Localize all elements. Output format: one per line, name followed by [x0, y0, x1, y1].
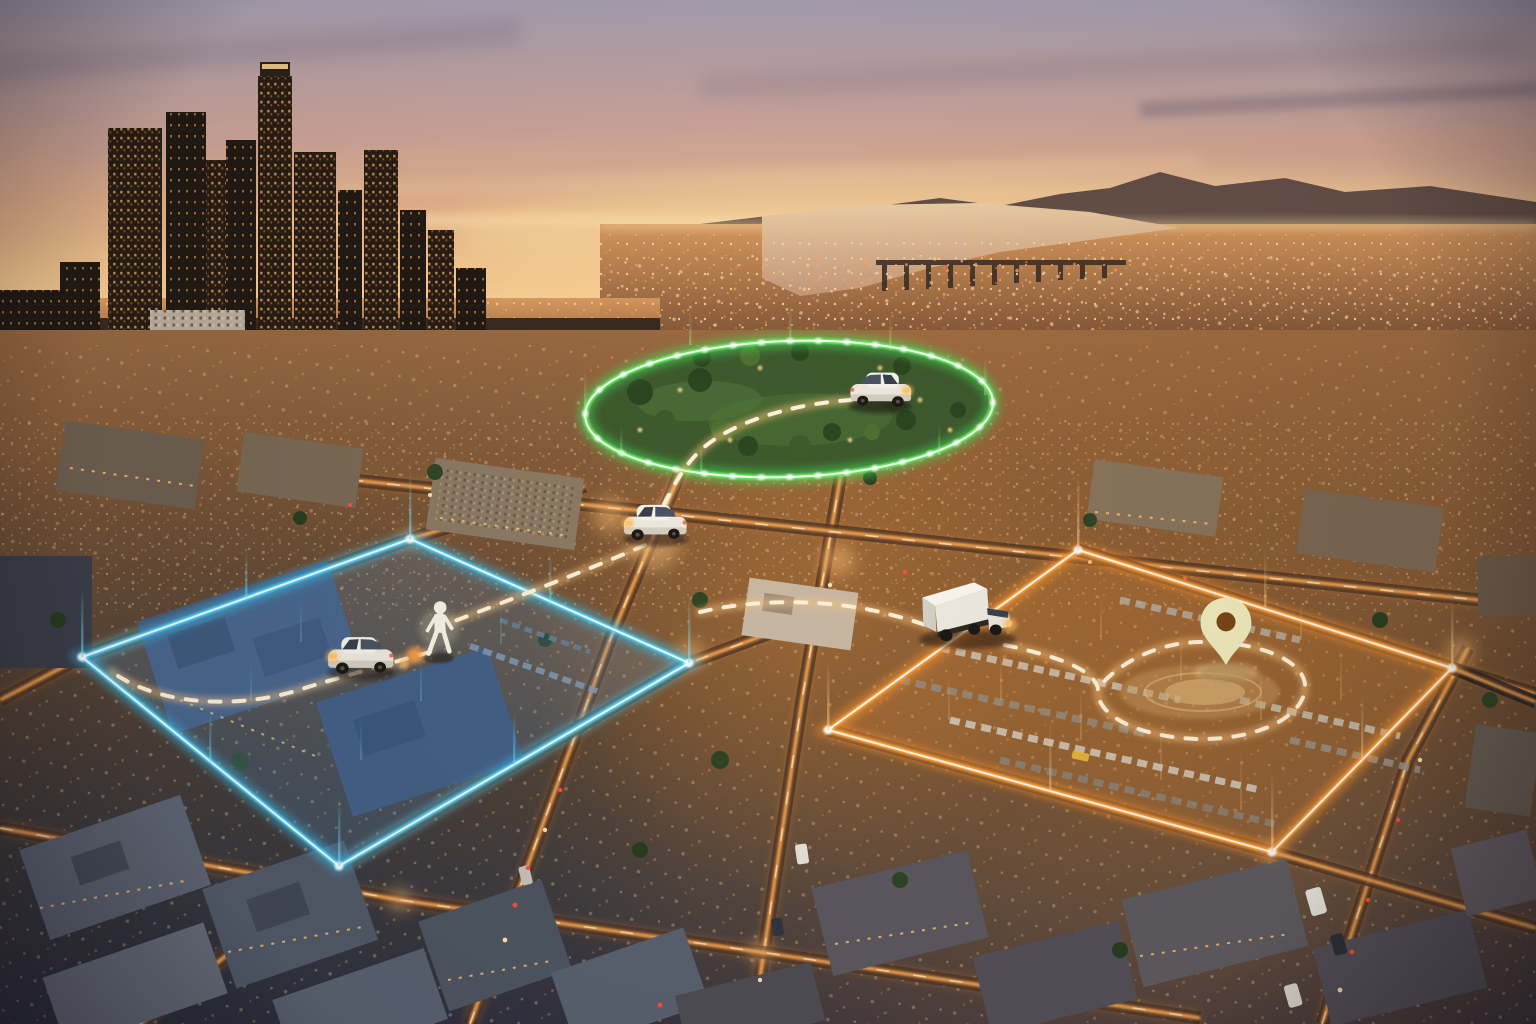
aerial-geofence-scene [0, 0, 1536, 1024]
vignette-overlay [0, 0, 1536, 1024]
